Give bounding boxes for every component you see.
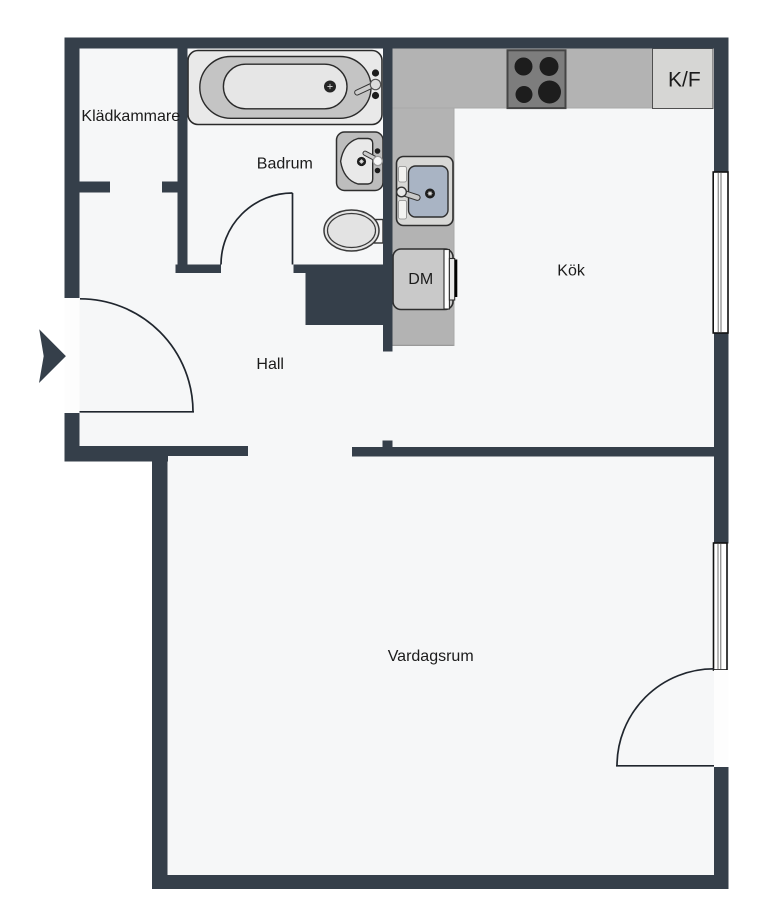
- svg-text:Badrum: Badrum: [257, 156, 313, 173]
- svg-text:DM: DM: [408, 271, 433, 288]
- svg-text:Klädkammare: Klädkammare: [81, 108, 180, 125]
- svg-text:Hall: Hall: [256, 356, 284, 373]
- svg-text:Vardagsrum: Vardagsrum: [388, 648, 474, 665]
- svg-text:Kök: Kök: [557, 263, 586, 280]
- svg-text:K/F: K/F: [668, 69, 701, 92]
